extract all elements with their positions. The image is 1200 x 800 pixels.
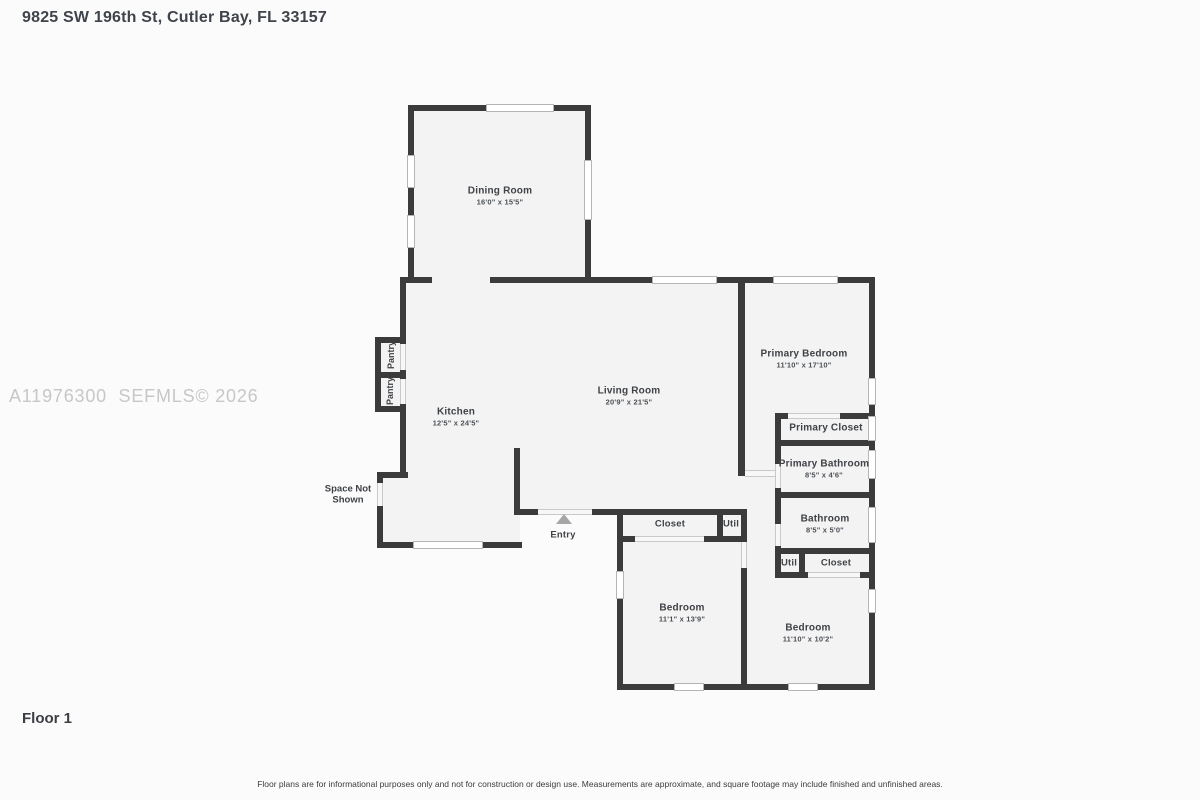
window <box>407 215 415 248</box>
door-opening <box>788 413 840 419</box>
room-label-dining: Dining Room 16'0" x 15'5" <box>468 186 532 207</box>
wall <box>490 277 591 283</box>
door-opening <box>741 542 747 568</box>
room-label-kitchen: Kitchen 12'5" x 24'5" <box>433 407 480 428</box>
room-label-closet-left: Closet <box>655 519 685 530</box>
entry-arrow-icon <box>556 514 572 524</box>
window <box>868 416 876 441</box>
door-opening <box>808 572 860 578</box>
room-label-closet-right: Closet <box>821 558 851 569</box>
wall <box>514 448 520 515</box>
wall <box>799 554 805 578</box>
wall <box>775 413 781 446</box>
wall <box>738 283 745 476</box>
wall <box>375 337 381 412</box>
room-label-bathroom: Bathroom 8'5" x 5'0" <box>801 514 850 535</box>
window <box>407 155 415 188</box>
wall <box>400 277 432 283</box>
wall <box>592 509 747 515</box>
window <box>486 104 554 112</box>
room-label-bedroom-right: Bedroom 11'10" x 10'2" <box>783 623 834 644</box>
window <box>868 589 876 613</box>
room-label-pantry-top: Pantry <box>386 341 396 369</box>
window <box>868 378 876 405</box>
door-opening <box>775 524 781 546</box>
wall <box>408 105 414 283</box>
wall <box>775 440 869 446</box>
room-label-primary-bedroom: Primary Bedroom 11'10" x 17'10" <box>761 349 848 370</box>
room-label-living: Living Room 20'9" x 21'5" <box>598 386 661 407</box>
room-label-primary-closet: Primary Closet <box>789 423 862 434</box>
window <box>788 683 818 691</box>
window <box>584 160 592 220</box>
floor-plan: Dining Room 16'0" x 15'5" Kitchen 12'5" … <box>0 0 1200 800</box>
door-opening <box>635 536 704 542</box>
wall <box>775 492 869 498</box>
door-opening <box>400 344 406 370</box>
wall <box>617 509 623 690</box>
disclaimer-text: Floor plans are for informational purpos… <box>0 779 1200 789</box>
space-not-shown-label: Space Not Shown <box>303 484 393 507</box>
window <box>616 571 624 599</box>
wall <box>775 548 869 554</box>
door-opening <box>400 379 406 404</box>
room-label-util-left: Util <box>723 519 739 530</box>
room-label-primary-bathroom: Primary Bathroom 8'5" x 4'6" <box>779 459 869 480</box>
window <box>773 276 838 284</box>
wall <box>869 277 875 690</box>
room-label-pantry-bottom: Pantry <box>385 377 395 405</box>
room-label-util-right: Util <box>781 558 797 569</box>
window <box>652 276 717 284</box>
door-opening <box>745 470 775 477</box>
window <box>413 541 483 549</box>
room-label-bedroom-left: Bedroom 11'1" x 13'9" <box>659 603 705 624</box>
floor-number-label: Floor 1 <box>22 710 72 727</box>
window <box>674 683 704 691</box>
window <box>868 507 876 543</box>
entry-label: Entry <box>550 530 575 541</box>
